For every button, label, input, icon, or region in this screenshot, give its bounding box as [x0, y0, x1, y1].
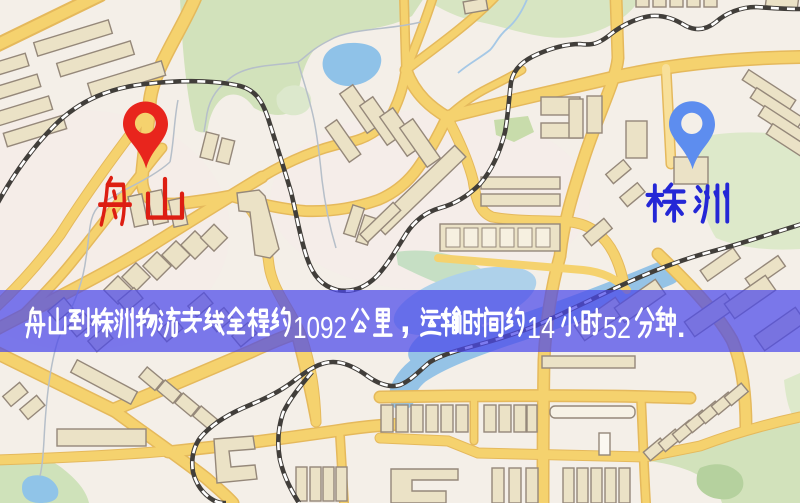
svg-text:,: ,	[400, 299, 411, 341]
svg-text:14: 14	[527, 310, 555, 345]
svg-text:.: .	[677, 311, 685, 344]
svg-text:1092: 1092	[293, 310, 347, 345]
svg-text:52: 52	[603, 310, 631, 345]
